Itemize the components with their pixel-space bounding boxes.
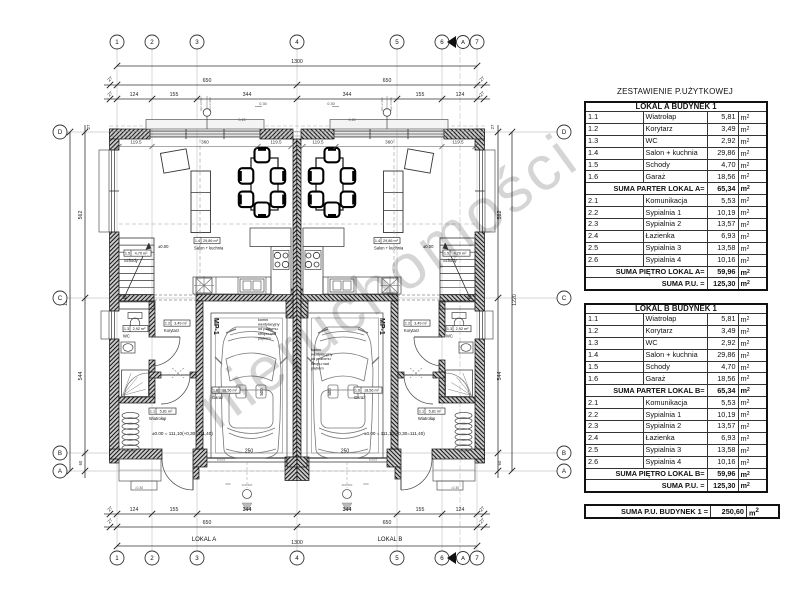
- svg-text:344: 344: [343, 507, 352, 513]
- svg-text:344: 344: [243, 92, 252, 98]
- svg-text:27: 27: [478, 505, 485, 512]
- svg-text:Wiatrołap: Wiatrołap: [418, 416, 436, 421]
- svg-text:1.3: 1.3: [124, 327, 129, 331]
- svg-text:124: 124: [130, 92, 139, 98]
- svg-text:C: C: [562, 295, 567, 302]
- svg-text:250: 250: [341, 449, 350, 455]
- svg-text:650: 650: [203, 520, 212, 526]
- svg-text:1300: 1300: [291, 59, 303, 65]
- svg-text:LOKAL A: LOKAL A: [192, 537, 216, 543]
- svg-text:155: 155: [416, 507, 425, 513]
- svg-text:4: 4: [295, 39, 299, 46]
- svg-text:1220: 1220: [512, 294, 518, 306]
- svg-text:27: 27: [478, 517, 485, 524]
- svg-text:0.30: 0.30: [327, 102, 334, 106]
- svg-text:LOKAL B: LOKAL B: [378, 537, 403, 543]
- svg-text:544: 544: [78, 372, 84, 381]
- svg-text:27: 27: [86, 124, 91, 129]
- svg-text:1.1: 1.1: [150, 410, 155, 414]
- svg-text:Wiatrołap: Wiatrołap: [149, 416, 167, 421]
- svg-text:2: 2: [150, 555, 154, 562]
- svg-text:250: 250: [245, 449, 254, 455]
- svg-text:500: 500: [327, 388, 332, 396]
- svg-text:A: A: [461, 556, 465, 562]
- svg-text:0,15: 0,15: [239, 118, 246, 122]
- svg-text:Schody: Schody: [124, 258, 139, 263]
- svg-text:124: 124: [130, 507, 139, 513]
- svg-text:↓0.30: ↓0.30: [135, 486, 143, 490]
- svg-text:544: 544: [497, 372, 503, 381]
- svg-text:18,56 m²: 18,56 m²: [364, 389, 380, 393]
- svg-text:119.5: 119.5: [452, 140, 464, 145]
- svg-text:650: 650: [383, 78, 392, 84]
- svg-text:WC: WC: [446, 333, 453, 338]
- svg-text:7: 7: [475, 555, 479, 562]
- svg-text:1: 1: [115, 39, 119, 46]
- svg-text:5,81 m²: 5,81 m²: [429, 410, 443, 414]
- svg-text:Rzn-2,40m: Rzn-2,40m: [208, 96, 212, 110]
- svg-text:20%: 20%: [363, 482, 369, 486]
- svg-text:WC: WC: [123, 333, 130, 338]
- svg-text:komin: komin: [258, 318, 268, 322]
- svg-text:155: 155: [170, 507, 179, 513]
- svg-text:155: 155: [170, 92, 179, 98]
- svg-text:562: 562: [78, 211, 84, 220]
- svg-text:119.5: 119.5: [130, 140, 142, 145]
- svg-text:60: 60: [78, 460, 83, 465]
- svg-text:1.4: 1.4: [195, 239, 200, 243]
- svg-text:2,92 m²: 2,92 m²: [456, 327, 470, 331]
- svg-text:Salon + kuchnia: Salon + kuchnia: [194, 245, 224, 250]
- svg-text:6: 6: [440, 555, 444, 562]
- svg-text:27: 27: [106, 517, 113, 524]
- svg-text:4: 4: [295, 555, 299, 562]
- svg-text:29,86 m²: 29,86 m²: [203, 239, 219, 243]
- svg-text:MP-1: MP-1: [212, 318, 219, 335]
- svg-text:2,92 m²: 2,92 m²: [133, 327, 147, 331]
- svg-text:B: B: [58, 450, 62, 457]
- svg-text:D: D: [58, 129, 63, 136]
- svg-text:344: 344: [343, 92, 352, 98]
- svg-text:3,49 m²: 3,49 m²: [174, 322, 188, 326]
- svg-text:1.2: 1.2: [405, 322, 410, 326]
- svg-text:Garaż: Garaż: [354, 395, 365, 400]
- svg-text:60: 60: [497, 460, 502, 465]
- svg-text:119.5: 119.5: [312, 140, 324, 145]
- svg-text:Rzn-2,40m: Rzn-2,40m: [380, 96, 384, 110]
- svg-text:124: 124: [456, 92, 465, 98]
- svg-text:3,49 m²: 3,49 m²: [414, 322, 428, 326]
- svg-text:1.6: 1.6: [355, 389, 360, 393]
- svg-text:27: 27: [106, 75, 113, 82]
- svg-text:C: C: [58, 295, 63, 302]
- svg-text:±0.00: ±0.00: [158, 244, 169, 249]
- svg-text:Korytarz: Korytarz: [404, 328, 419, 333]
- svg-text:27: 27: [478, 90, 485, 97]
- svg-text:6: 6: [440, 39, 444, 46]
- svg-text:3: 3: [195, 39, 199, 46]
- svg-text:1: 1: [115, 555, 119, 562]
- svg-text:Apn-0,00m: Apn-0,00m: [199, 96, 203, 110]
- svg-text:±0.05: ±0.05: [369, 458, 377, 462]
- svg-text:1300: 1300: [291, 540, 303, 546]
- svg-text:124: 124: [456, 507, 465, 513]
- svg-text:Korytarz: Korytarz: [164, 328, 179, 333]
- svg-text:1.5: 1.5: [125, 252, 130, 256]
- svg-text:650: 650: [203, 78, 212, 84]
- svg-text:260x500: 260x500: [342, 483, 353, 487]
- svg-text:155: 155: [416, 92, 425, 98]
- svg-text:260x500: 260x500: [242, 483, 253, 487]
- svg-text:1.3: 1.3: [447, 327, 452, 331]
- svg-text:1.2: 1.2: [165, 322, 170, 326]
- svg-text:5: 5: [395, 555, 399, 562]
- svg-text:A: A: [461, 40, 465, 46]
- svg-text:B: B: [562, 450, 566, 457]
- svg-text:0,15: 0,15: [349, 118, 356, 122]
- svg-text:0.30: 0.30: [259, 102, 266, 106]
- svg-text:3: 3: [195, 555, 199, 562]
- svg-text:27: 27: [490, 124, 495, 129]
- svg-text:360: 360: [201, 140, 209, 145]
- svg-text:4,70 m²: 4,70 m²: [135, 252, 149, 256]
- svg-text:↓0.30: ↓0.30: [451, 486, 459, 490]
- svg-text:±0.05: ±0.05: [217, 458, 225, 462]
- svg-text:650: 650: [383, 520, 392, 526]
- svg-text:27: 27: [478, 75, 485, 82]
- svg-text:1.1: 1.1: [419, 410, 424, 414]
- svg-text:Apn-0,00m: Apn-0,00m: [389, 96, 393, 110]
- svg-text:5: 5: [395, 39, 399, 46]
- svg-text:119.5: 119.5: [270, 140, 282, 145]
- svg-text:360: 360: [385, 140, 393, 145]
- svg-text:7: 7: [475, 39, 479, 46]
- svg-text:344: 344: [243, 507, 252, 513]
- svg-text:±0.00 = 111,10(+0,30=111,40): ±0.00 = 111,10(+0,30=111,40): [152, 431, 213, 436]
- svg-text:5,81 m²: 5,81 m²: [160, 410, 174, 414]
- svg-text:D: D: [562, 129, 567, 136]
- svg-text:2: 2: [150, 39, 154, 46]
- svg-text:±0.00 = 111,10(+0,30=111,40): ±0.00 = 111,10(+0,30=111,40): [364, 431, 425, 436]
- svg-text:20%: 20%: [225, 482, 231, 486]
